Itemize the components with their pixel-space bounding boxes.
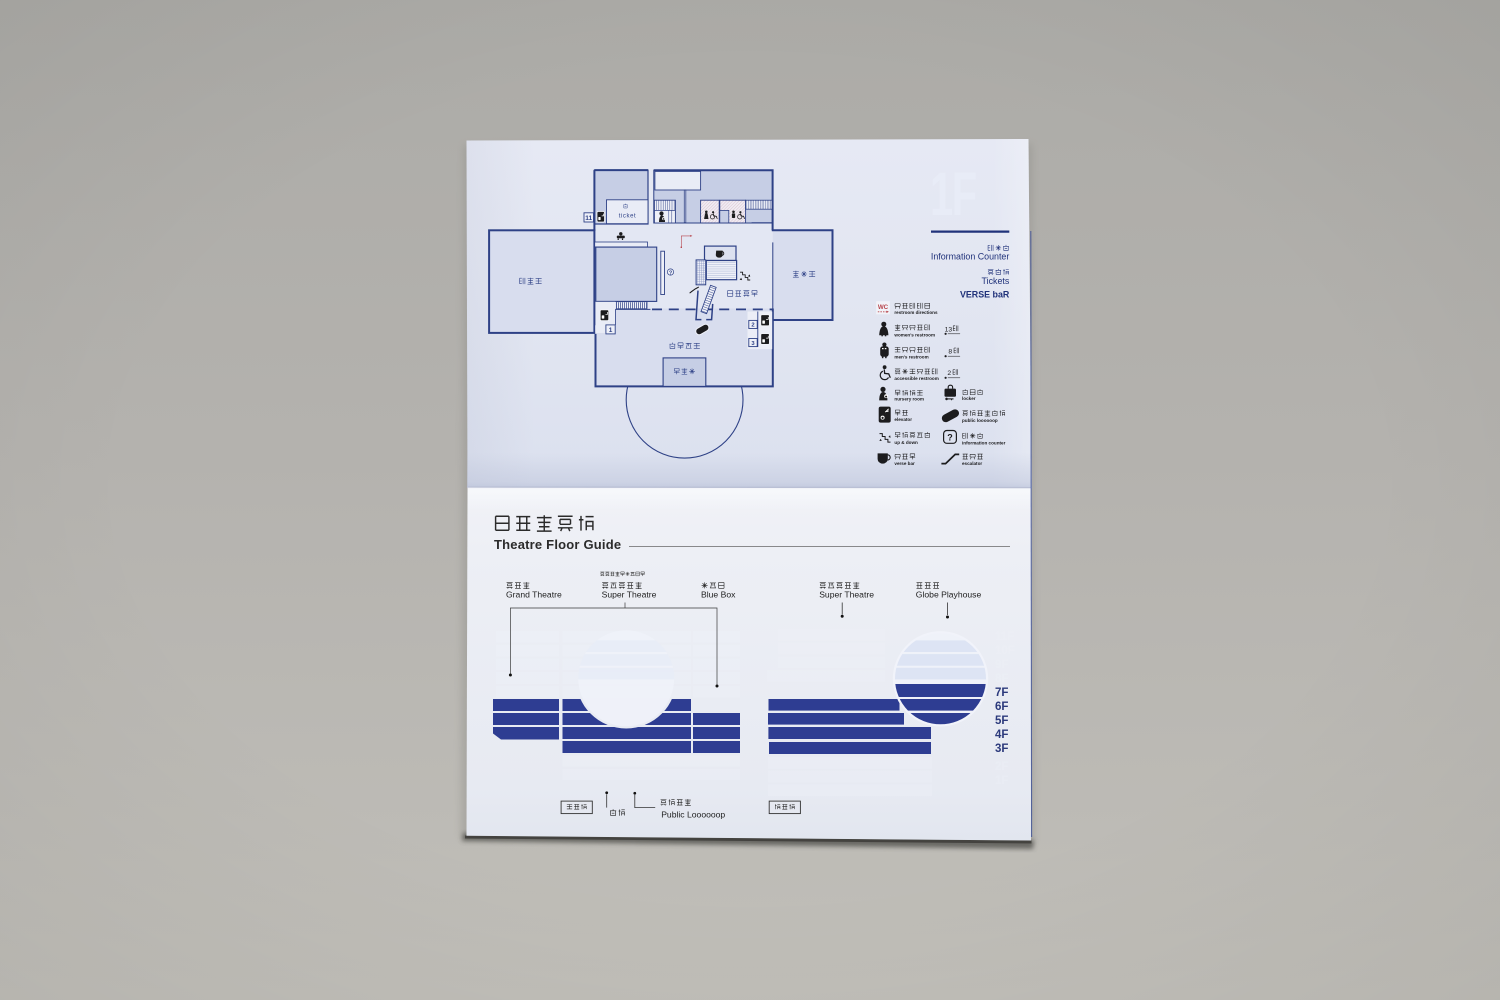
svg-text:elevator: elevator [894, 417, 912, 422]
svg-text:Theatre Floor Guide: Theatre Floor Guide [494, 537, 621, 552]
svg-text:public loooooop: public loooooop [962, 418, 998, 423]
svg-text:5F: 5F [995, 715, 1008, 727]
svg-text:3F: 3F [995, 743, 1008, 755]
svg-text:11: 11 [585, 215, 592, 222]
svg-text:Globe Playhouse: Globe Playhouse [916, 590, 982, 600]
svg-text:nursery room: nursery room [894, 397, 924, 402]
svg-text:information counter: information counter [962, 440, 1006, 445]
svg-text:Grand Theatre: Grand Theatre [506, 590, 562, 600]
svg-text:2: 2 [947, 370, 951, 377]
svg-text:2F: 2F [995, 761, 1008, 773]
svg-text:Blue Box: Blue Box [701, 590, 736, 600]
svg-text:13: 13 [945, 326, 953, 333]
svg-text:verse bar: verse bar [894, 461, 915, 466]
svg-text:6F: 6F [995, 701, 1008, 713]
svg-text:9F: 9F [995, 659, 1008, 671]
svg-text:up & down: up & down [894, 440, 918, 445]
svg-text:Super Theatre: Super Theatre [602, 590, 657, 600]
svg-text:1F: 1F [930, 161, 976, 229]
svg-text:accessible restroom: accessible restroom [894, 376, 938, 381]
svg-text:VERSE baR: VERSE baR [960, 290, 1010, 300]
svg-text:restroom directions: restroom directions [894, 310, 938, 315]
svg-text:7F: 7F [995, 687, 1008, 699]
svg-text:men's restroom: men's restroom [894, 355, 928, 360]
svg-text:8F: 8F [995, 673, 1008, 685]
svg-text:escalator: escalator [962, 461, 982, 466]
svg-text:ticket: ticket [619, 214, 637, 220]
svg-text:Tickets: Tickets [982, 276, 1010, 286]
svg-text:1: 1 [609, 327, 613, 334]
svg-text:WC: WC [878, 304, 889, 311]
svg-text:Public Loooooop: Public Loooooop [661, 809, 725, 819]
svg-text:8: 8 [948, 349, 952, 356]
svg-text:1F: 1F [995, 775, 1008, 787]
svg-text:4F: 4F [995, 729, 1008, 741]
svg-text:Super Theatre: Super Theatre [819, 590, 874, 600]
svg-text:10F: 10F [995, 645, 1015, 657]
svg-text:women's restroom: women's restroom [893, 332, 935, 337]
svg-text:?: ? [947, 433, 953, 443]
svg-text:11F: 11F [995, 631, 1014, 643]
svg-text:locker: locker [962, 396, 976, 401]
svg-text:?: ? [669, 270, 672, 276]
svg-text:Information Counter: Information Counter [931, 252, 1009, 262]
